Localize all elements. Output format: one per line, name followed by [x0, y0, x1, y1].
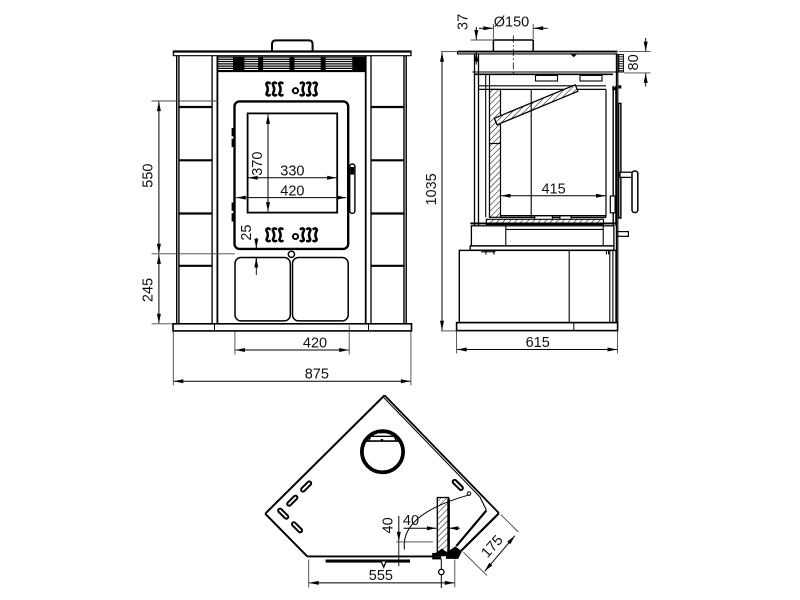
svg-text:550: 550: [140, 163, 156, 187]
svg-text:245: 245: [140, 278, 156, 302]
svg-text:555: 555: [369, 568, 393, 584]
svg-text:25: 25: [239, 225, 255, 241]
svg-text:615: 615: [526, 335, 550, 351]
svg-text:40: 40: [380, 517, 396, 533]
svg-text:1035: 1035: [424, 173, 440, 205]
svg-text:37: 37: [456, 14, 472, 30]
svg-text:Ø150: Ø150: [494, 14, 529, 30]
svg-text:420: 420: [280, 183, 304, 199]
svg-text:370: 370: [250, 152, 266, 176]
svg-text:420: 420: [303, 335, 327, 351]
svg-text:80: 80: [626, 54, 642, 70]
svg-text:40: 40: [403, 513, 419, 529]
svg-text:415: 415: [541, 182, 565, 198]
svg-text:875: 875: [305, 367, 329, 383]
svg-text:330: 330: [280, 164, 304, 180]
